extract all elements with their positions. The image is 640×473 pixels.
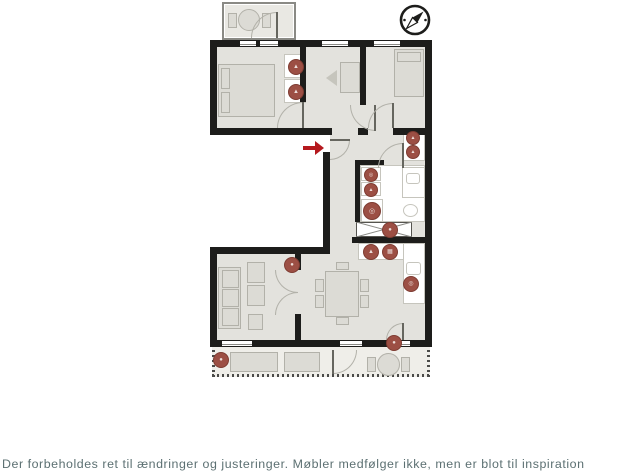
sofa-cushion [222, 308, 239, 326]
balcony-railing [427, 347, 430, 377]
desk [340, 62, 360, 93]
washer-marker-icon: ◎ [363, 202, 381, 220]
balcony-lounger [230, 352, 278, 372]
door-leaf [276, 12, 278, 38]
wardrobe-marker-icon: ▲ [406, 131, 420, 145]
dining-chair [360, 295, 369, 308]
floor-plan-canvas: ▲▲▲▲◎▲◎●▲▦◎●●● Der forbeholdes ret til æ… [0, 0, 640, 473]
door-leaf [402, 143, 404, 168]
wall [360, 47, 366, 105]
washer-marker-icon: ◎ [364, 168, 378, 182]
desk-chair [326, 70, 337, 86]
entrance-arrow-icon [303, 146, 315, 150]
dining-chair [360, 279, 369, 292]
window [374, 41, 400, 46]
wall [210, 247, 330, 254]
pillow [221, 92, 230, 113]
dining-table [325, 271, 359, 317]
balcony-railing [212, 374, 430, 377]
balcony-door-opening [340, 341, 362, 346]
toilet [403, 204, 418, 217]
oven-marker-icon: ▦ [382, 244, 398, 260]
generic-marker-icon: ● [386, 335, 402, 351]
french-door-opening [222, 341, 252, 346]
wall [210, 247, 217, 347]
compass-rose-icon [398, 3, 432, 37]
generic-marker-icon: ● [284, 257, 300, 273]
balcony-lounger [284, 352, 320, 372]
wall [210, 128, 332, 135]
armchair [247, 262, 265, 283]
wardrobe-marker-icon: ▲ [364, 183, 378, 197]
side-table [248, 314, 263, 330]
door-leaf [302, 102, 304, 128]
bath-sink [406, 173, 420, 184]
wardrobe-marker-icon: ▲ [288, 59, 304, 75]
door-track-tick [256, 41, 260, 46]
dining-chair [336, 317, 349, 325]
kitchen-sink [406, 262, 421, 275]
door-leaf [330, 139, 350, 141]
dining-chair [315, 295, 324, 308]
washer-marker-icon: ◎ [403, 276, 419, 292]
wall [355, 160, 360, 222]
generic-marker-icon: ● [382, 222, 398, 238]
door-leaf [402, 323, 404, 340]
sofa-cushion [222, 289, 239, 307]
window [322, 41, 348, 46]
wall [295, 314, 301, 340]
door-leaf [392, 103, 394, 128]
balcony-chair [367, 357, 376, 372]
generic-marker-icon: ● [213, 352, 229, 368]
sofa-cushion [222, 270, 239, 288]
wall [210, 40, 217, 135]
wardrobe-marker-icon: ▲ [406, 145, 420, 159]
door-leaf [332, 350, 334, 374]
balcony-round-table [377, 353, 400, 376]
wardrobe-marker-icon: ▲ [363, 244, 379, 260]
balcony-chair [401, 357, 410, 372]
armchair [247, 285, 265, 306]
dining-chair [315, 279, 324, 292]
disclaimer-text: Der forbeholdes ret til ændringer og jus… [2, 457, 585, 471]
entrance-arrow-head [315, 141, 324, 155]
pillow [397, 52, 421, 62]
entrance-opening [323, 135, 330, 152]
balcony-chair [228, 13, 237, 28]
wall [352, 237, 432, 243]
wall [425, 40, 432, 347]
pillow [221, 68, 230, 89]
dining-chair [336, 262, 349, 270]
wardrobe-marker-icon: ▲ [288, 84, 304, 100]
wall [323, 152, 330, 248]
